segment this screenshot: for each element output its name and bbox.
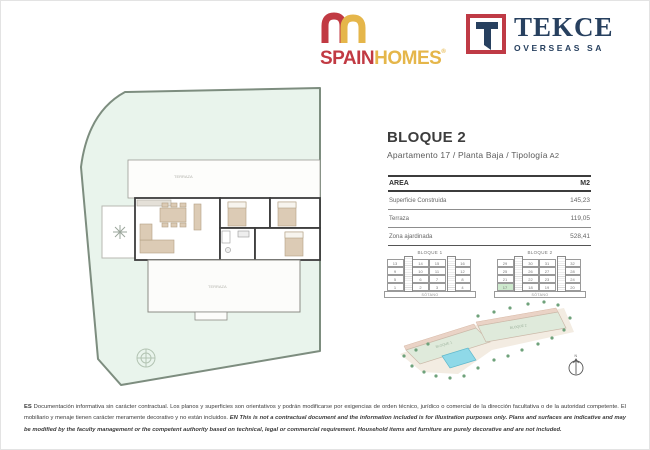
table-row: Superficie Construida 145,23 (388, 191, 591, 210)
row-value: 145,23 (536, 191, 591, 210)
apartment-cell: 19 (539, 283, 556, 292)
disclaimer-es-prefix: ES (24, 404, 32, 410)
unit-title: BLOQUE 2 (387, 129, 466, 146)
bathroom (220, 228, 255, 260)
siteplan-drawing: BLOQUE 1 BLOQUE 2 N (398, 298, 598, 393)
terrace-step (195, 312, 227, 320)
block-diagram-bloque2: BLOQUE 2 2930313225262728212223241718192… (494, 250, 586, 298)
apartment-cell: 3 (429, 283, 446, 292)
tree-icon (137, 349, 155, 367)
tekce-wordmark: TEKCE (514, 14, 614, 41)
stairs-shaft (557, 256, 566, 292)
plant-icon (113, 225, 127, 239)
apartment-cell: 17 (497, 283, 514, 292)
apartment-cell: 4 (454, 283, 471, 292)
apartment-cell: 18 (522, 283, 539, 292)
row-label: Zona ajardinada (388, 228, 536, 246)
spainhomes-logo: SPAINHOMES® (320, 12, 460, 68)
disclaimer-text: ES Documentación informativa sin carácte… (24, 402, 626, 436)
table-row: Zona ajardinada 528,41 (388, 228, 591, 246)
apartment-cell: 1 (387, 283, 404, 292)
unit-subtitle: Apartamento 17 / Planta Baja / Tipología… (387, 150, 559, 160)
terrace-top-label: TERRAZA (174, 174, 193, 179)
terrace-top (128, 160, 320, 198)
row-label: Superficie Construida (388, 191, 536, 210)
stairs-shaft (404, 256, 413, 292)
apartment-cell: 20 (564, 283, 581, 292)
terrace-bottom-label: TERRAZA (208, 284, 227, 289)
floorplan-drawing: TERRAZA TERRAZA (70, 82, 330, 397)
block-diagram-bloque1: BLOQUE 1 13141516910111256781234 SÓTANO (384, 250, 476, 298)
tekce-logo: TEKCE OVERSEAS SA (466, 14, 614, 54)
area-table: AREA M2 Superficie Construida 145,23 Ter… (388, 175, 591, 246)
basement-label: SÓTANO (494, 291, 586, 298)
area-table-header-m2: M2 (536, 176, 591, 191)
disclaimer-en-prefix: EN (230, 415, 238, 421)
north-label: N (575, 354, 578, 358)
tekce-monogram-icon (466, 14, 506, 54)
stairs-shaft (514, 256, 523, 292)
row-value: 119,05 (536, 210, 591, 228)
row-label: Terraza (388, 210, 536, 228)
spainhomes-wordmark: SPAINHOMES® (320, 49, 460, 68)
north-compass-icon (569, 359, 583, 375)
row-value: 528,41 (536, 228, 591, 246)
tekce-subtitle: OVERSEAS SA (514, 44, 614, 53)
block-title: BLOQUE 1 (384, 250, 476, 255)
spainhomes-arches-icon (320, 12, 366, 43)
apartment-cell: 2 (412, 283, 429, 292)
block-diagrams: BLOQUE 1 13141516910111256781234 SÓTANO … (384, 250, 586, 298)
stairs-shaft (447, 256, 456, 292)
table-row: Terraza 119,05 (388, 210, 591, 228)
basement-label: SÓTANO (384, 291, 476, 298)
block-title: BLOQUE 2 (494, 250, 586, 255)
area-table-header-area: AREA (388, 176, 536, 191)
